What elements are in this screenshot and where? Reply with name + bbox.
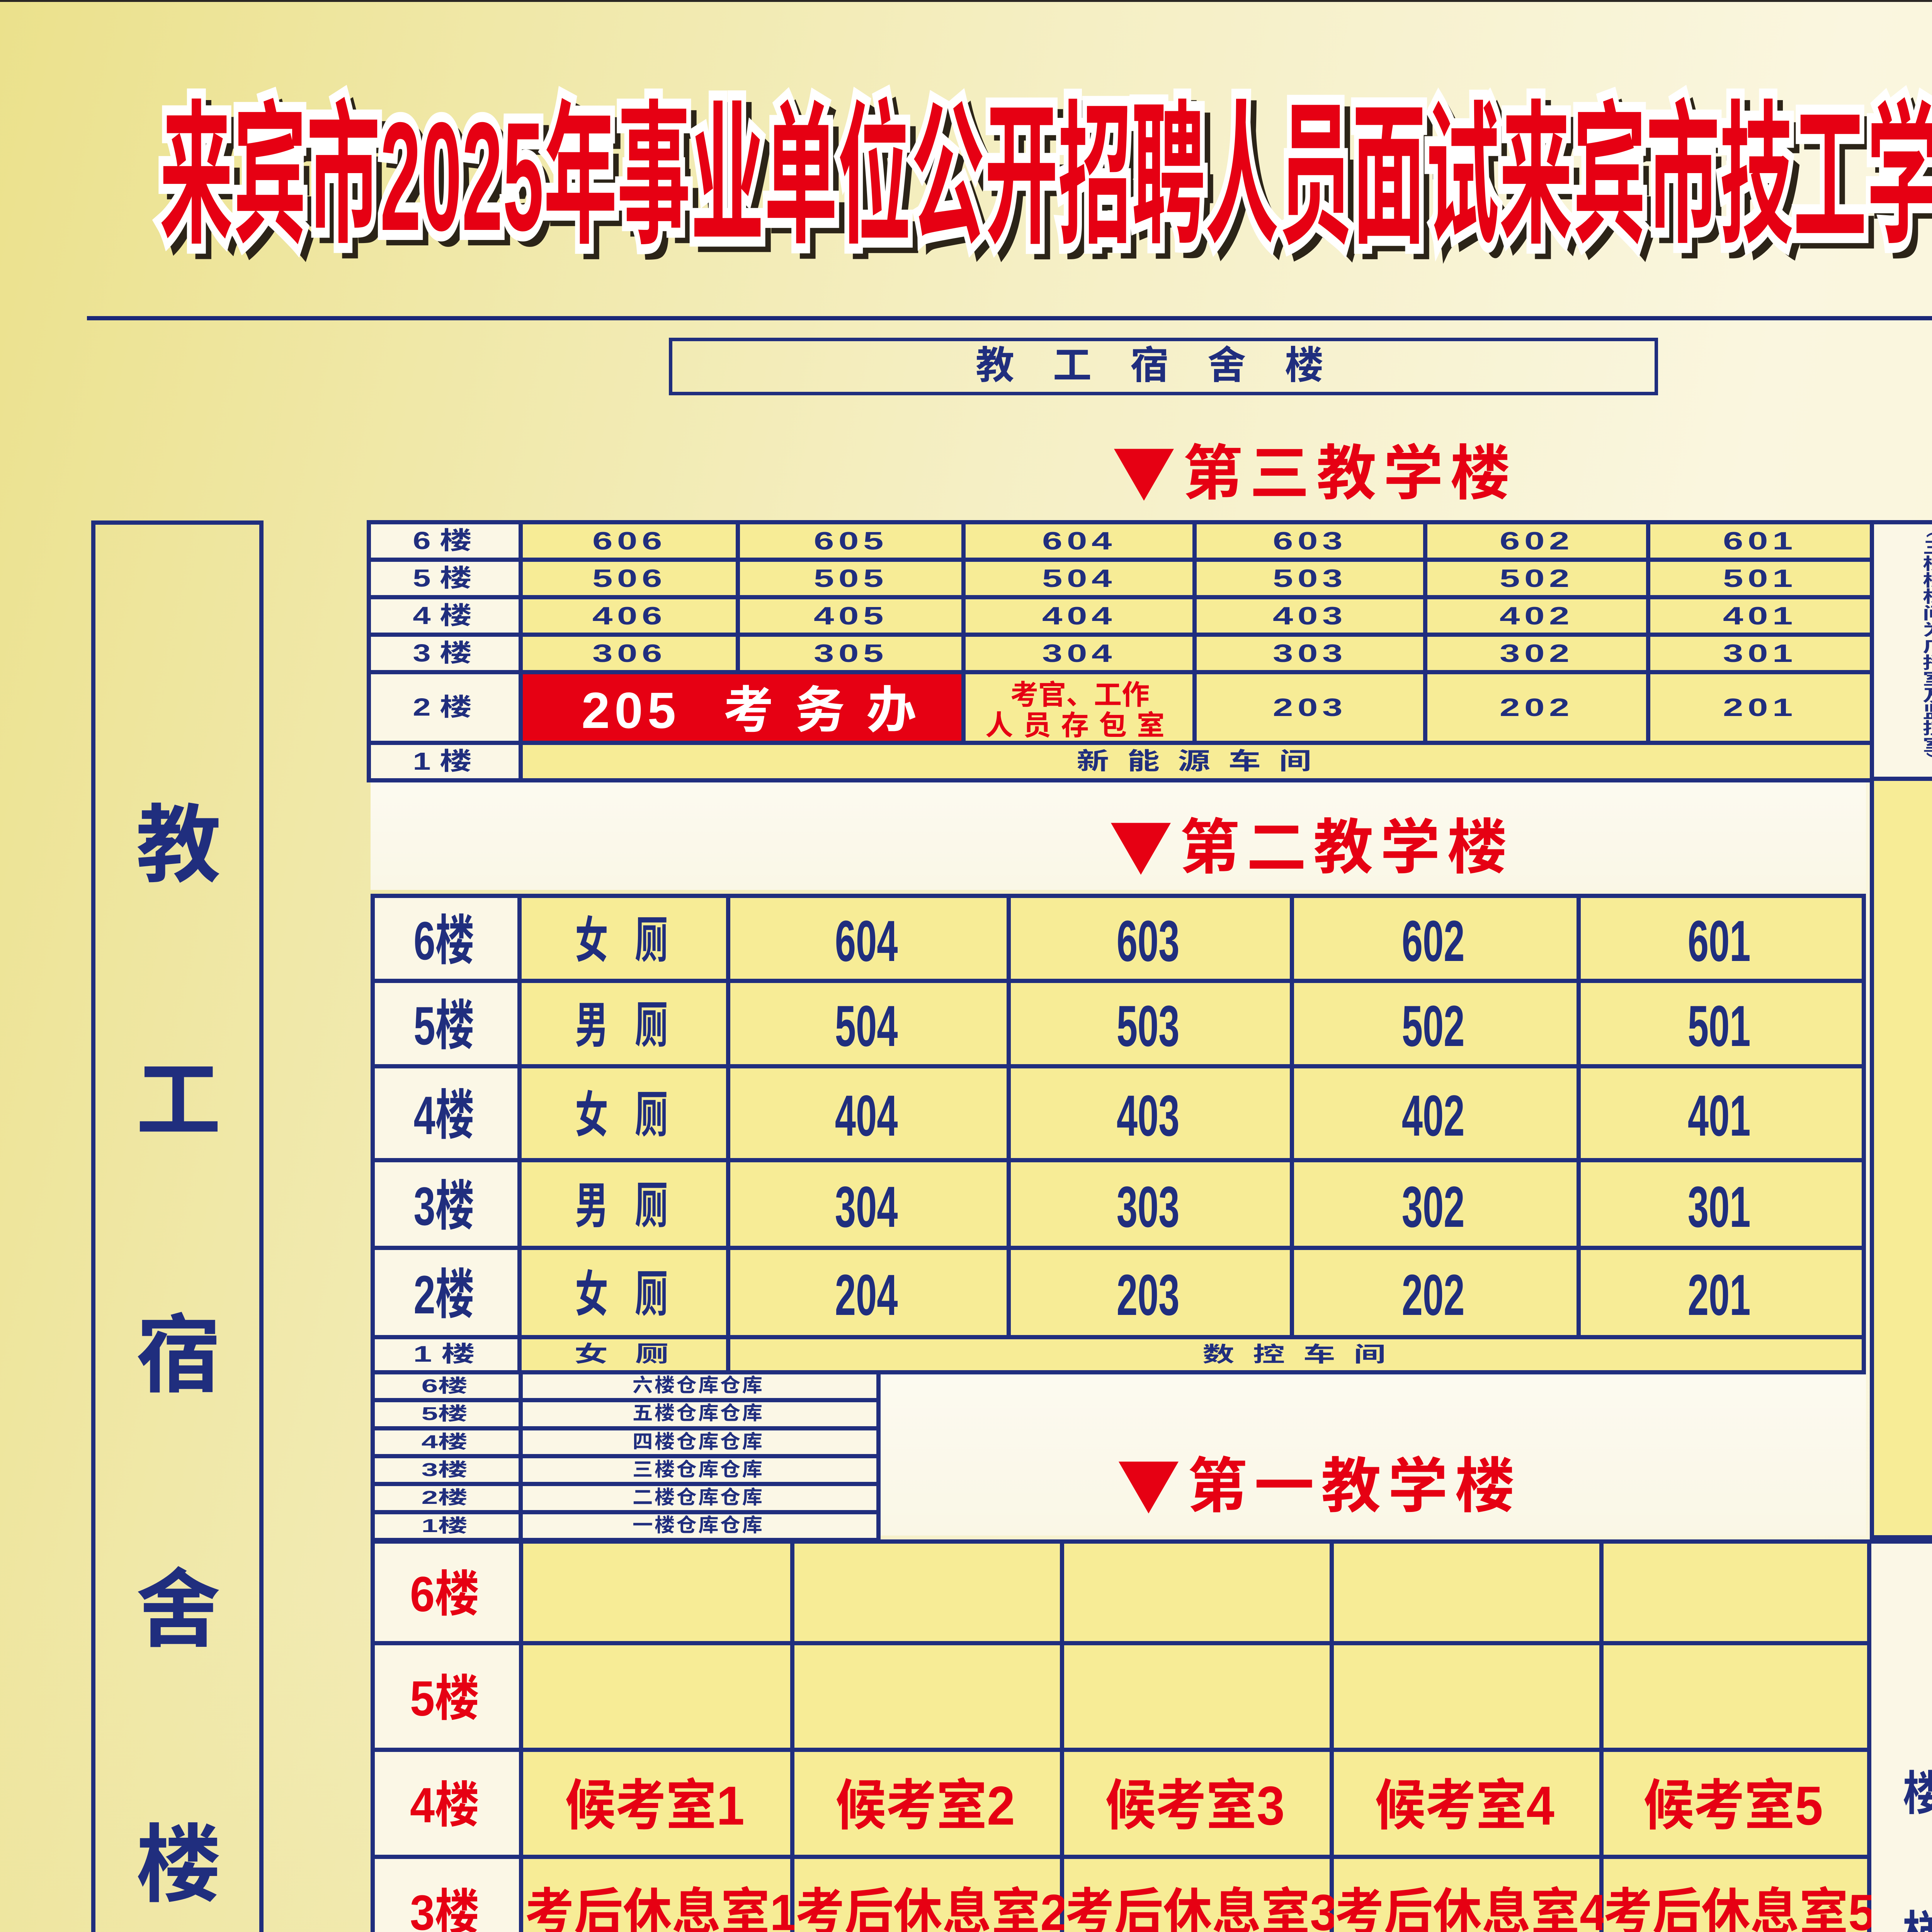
svg-text:来宾市2025年事业单位公开招聘人员面试来宾市技工学校考点考: 来宾市2025年事业单位公开招聘人员面试来宾市技工学校考点考场示意图 [160, 51, 1932, 275]
